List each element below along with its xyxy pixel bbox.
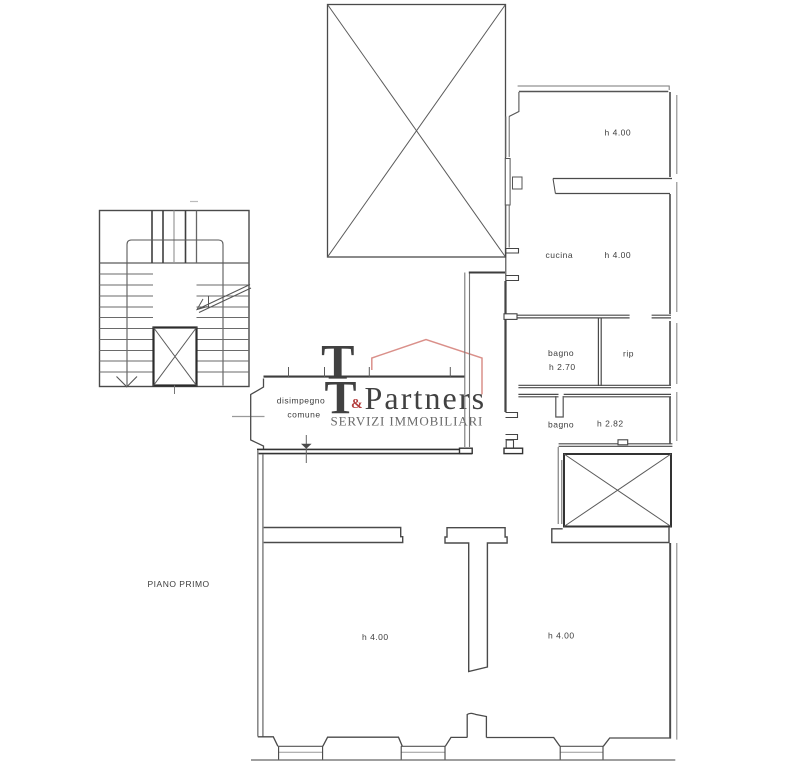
svg-text:h 4.00: h 4.00 [605,250,632,260]
svg-text:h 4.00: h 4.00 [362,632,389,642]
svg-text:h 4.00: h 4.00 [605,128,632,138]
svg-text:rip: rip [623,349,634,359]
svg-text:Partners: Partners [365,380,487,416]
svg-text:SERVIZI IMMOBILIARI: SERVIZI IMMOBILIARI [331,414,484,429]
svg-text:h 4.00: h 4.00 [548,631,575,641]
svg-text:bagno: bagno [548,348,574,358]
svg-text:h 2.70: h 2.70 [549,362,576,372]
svg-text:cucina: cucina [546,250,574,260]
svg-text:PIANO PRIMO: PIANO PRIMO [148,579,210,589]
svg-text:comune: comune [287,410,320,420]
svg-text:bagno: bagno [548,420,574,430]
svg-text:&: & [351,397,363,412]
svg-text:disimpegno: disimpegno [277,396,325,406]
svg-text:h 2.82: h 2.82 [597,419,624,429]
